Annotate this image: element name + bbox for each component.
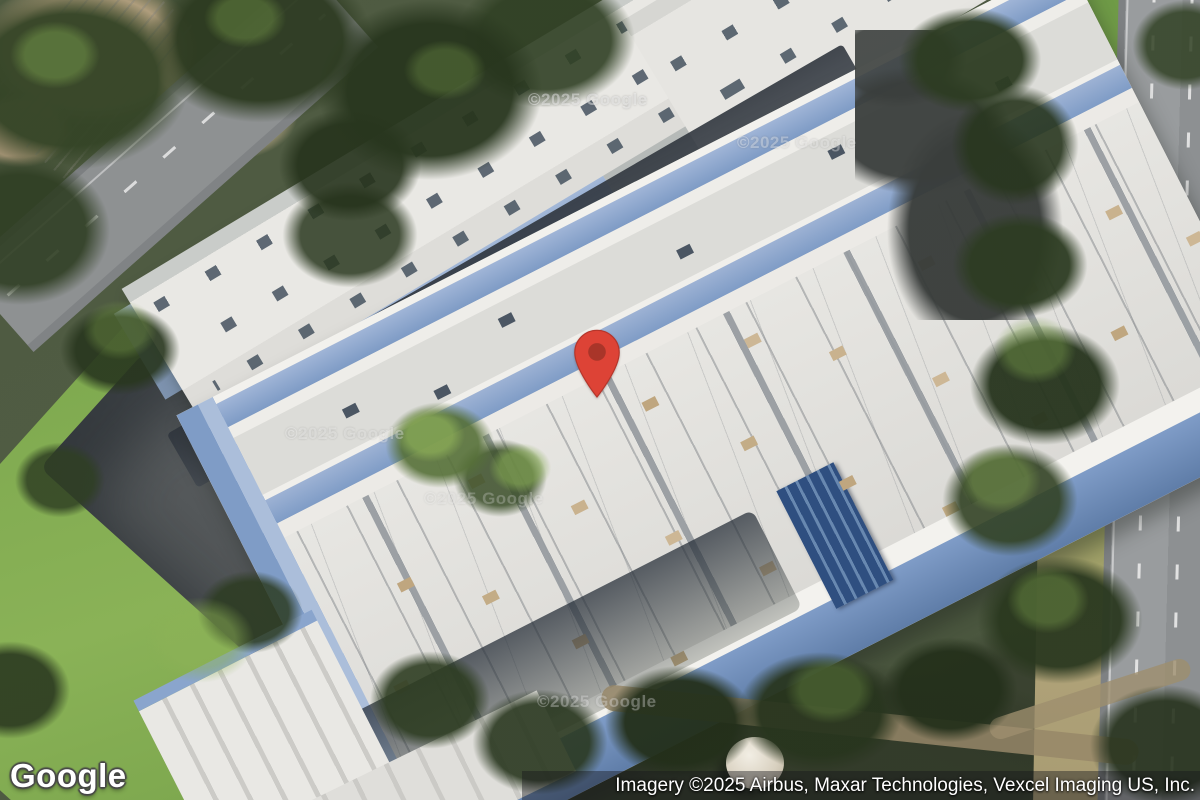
map-pin-dot — [588, 343, 606, 361]
map-pin-body[interactable] — [575, 330, 619, 397]
attribution-bar: Imagery ©2025 Airbus, Maxar Technologies… — [522, 771, 1200, 800]
driveway-northeast — [855, 30, 1105, 320]
google-logo[interactable]: Google — [10, 759, 127, 792]
attribution-text: Imagery ©2025 Airbus, Maxar Technologies… — [615, 775, 1195, 797]
satellite-map-canvas[interactable]: ©2025 Google ©2025 Google ©2025 Google ©… — [0, 0, 1200, 800]
map-pin-icon[interactable] — [574, 328, 620, 400]
